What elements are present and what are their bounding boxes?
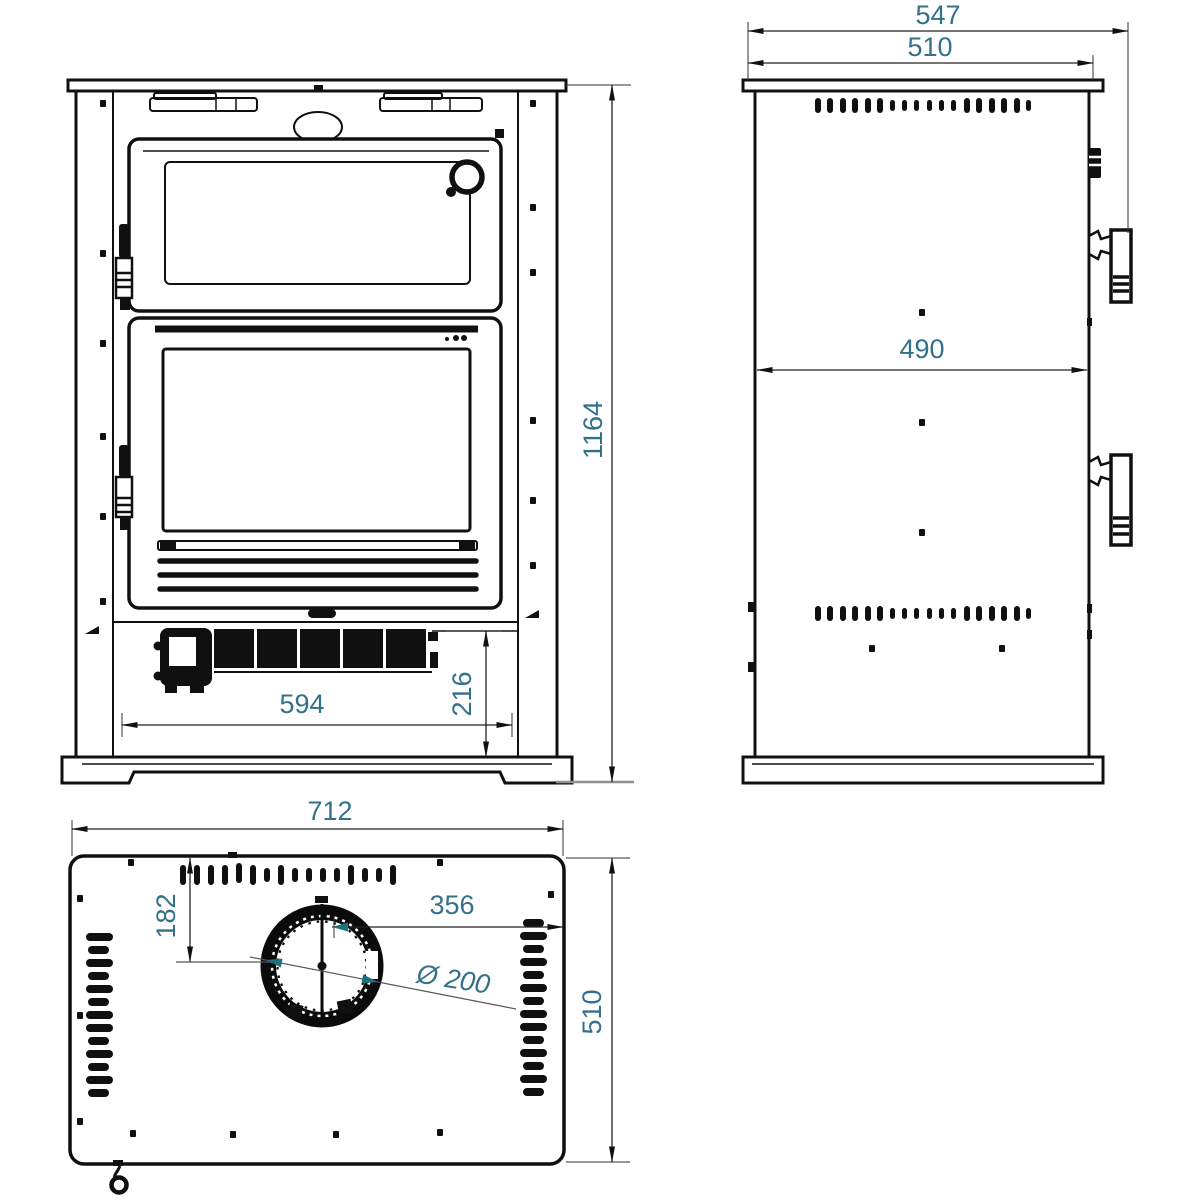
- dim-label-front-base-height: 216: [447, 671, 477, 716]
- front-ash-grille: [214, 629, 438, 672]
- dim-top-depth: 510: [566, 858, 630, 1162]
- dim-front-height: 1164: [556, 85, 634, 782]
- dim-label-side-depth-overall: 547: [915, 0, 960, 30]
- side-left-tick-2: [748, 662, 755, 672]
- dim-label-front-height: 1164: [578, 401, 608, 459]
- dim-label-side-depth-top: 510: [907, 32, 952, 62]
- front-base-plinth: [62, 757, 572, 783]
- front-view: 1164 594 216: [62, 80, 634, 783]
- dim-label-flue-offset-front: 182: [151, 893, 181, 938]
- front-oven-door: [116, 129, 504, 311]
- oven-door-latch-mark: [495, 129, 504, 138]
- front-top-tick: [314, 85, 323, 91]
- side-view: 547 510 490: [743, 0, 1131, 783]
- dim-label-top-width: 712: [307, 796, 352, 826]
- dim-side-depth-top: 510: [748, 32, 1093, 80]
- flue-center-point: [318, 962, 327, 971]
- fire-door-glass: [163, 349, 470, 531]
- knob-tab: [446, 187, 456, 197]
- dim-label-front-width: 594: [279, 689, 324, 719]
- front-lower-handle-mark: [308, 609, 336, 618]
- side-base-plinth: [743, 757, 1103, 783]
- dim-label-top-depth: 510: [577, 989, 607, 1034]
- technical-drawing-page: 1164 594 216: [0, 0, 1200, 1200]
- dim-label-flue-offset-right: 356: [429, 890, 474, 920]
- dim-label-side-depth-body: 490: [899, 334, 944, 364]
- flue-notch: [366, 951, 378, 979]
- dim-top-width: 712: [72, 796, 563, 856]
- side-left-tick-1: [748, 602, 755, 612]
- side-top-plate: [743, 80, 1103, 91]
- oven-door-knob: [452, 162, 482, 192]
- top-view: 712 182 356 Ø 200 510: [70, 796, 630, 1193]
- side-upper-handle: [1089, 230, 1131, 302]
- front-fire-door: [116, 318, 501, 608]
- top-edge-tick: [228, 852, 237, 858]
- side-lower-handle: [1087, 455, 1131, 639]
- stove-three-view-drawing: 1164 594 216: [0, 0, 1200, 1200]
- front-control-box: [154, 628, 213, 693]
